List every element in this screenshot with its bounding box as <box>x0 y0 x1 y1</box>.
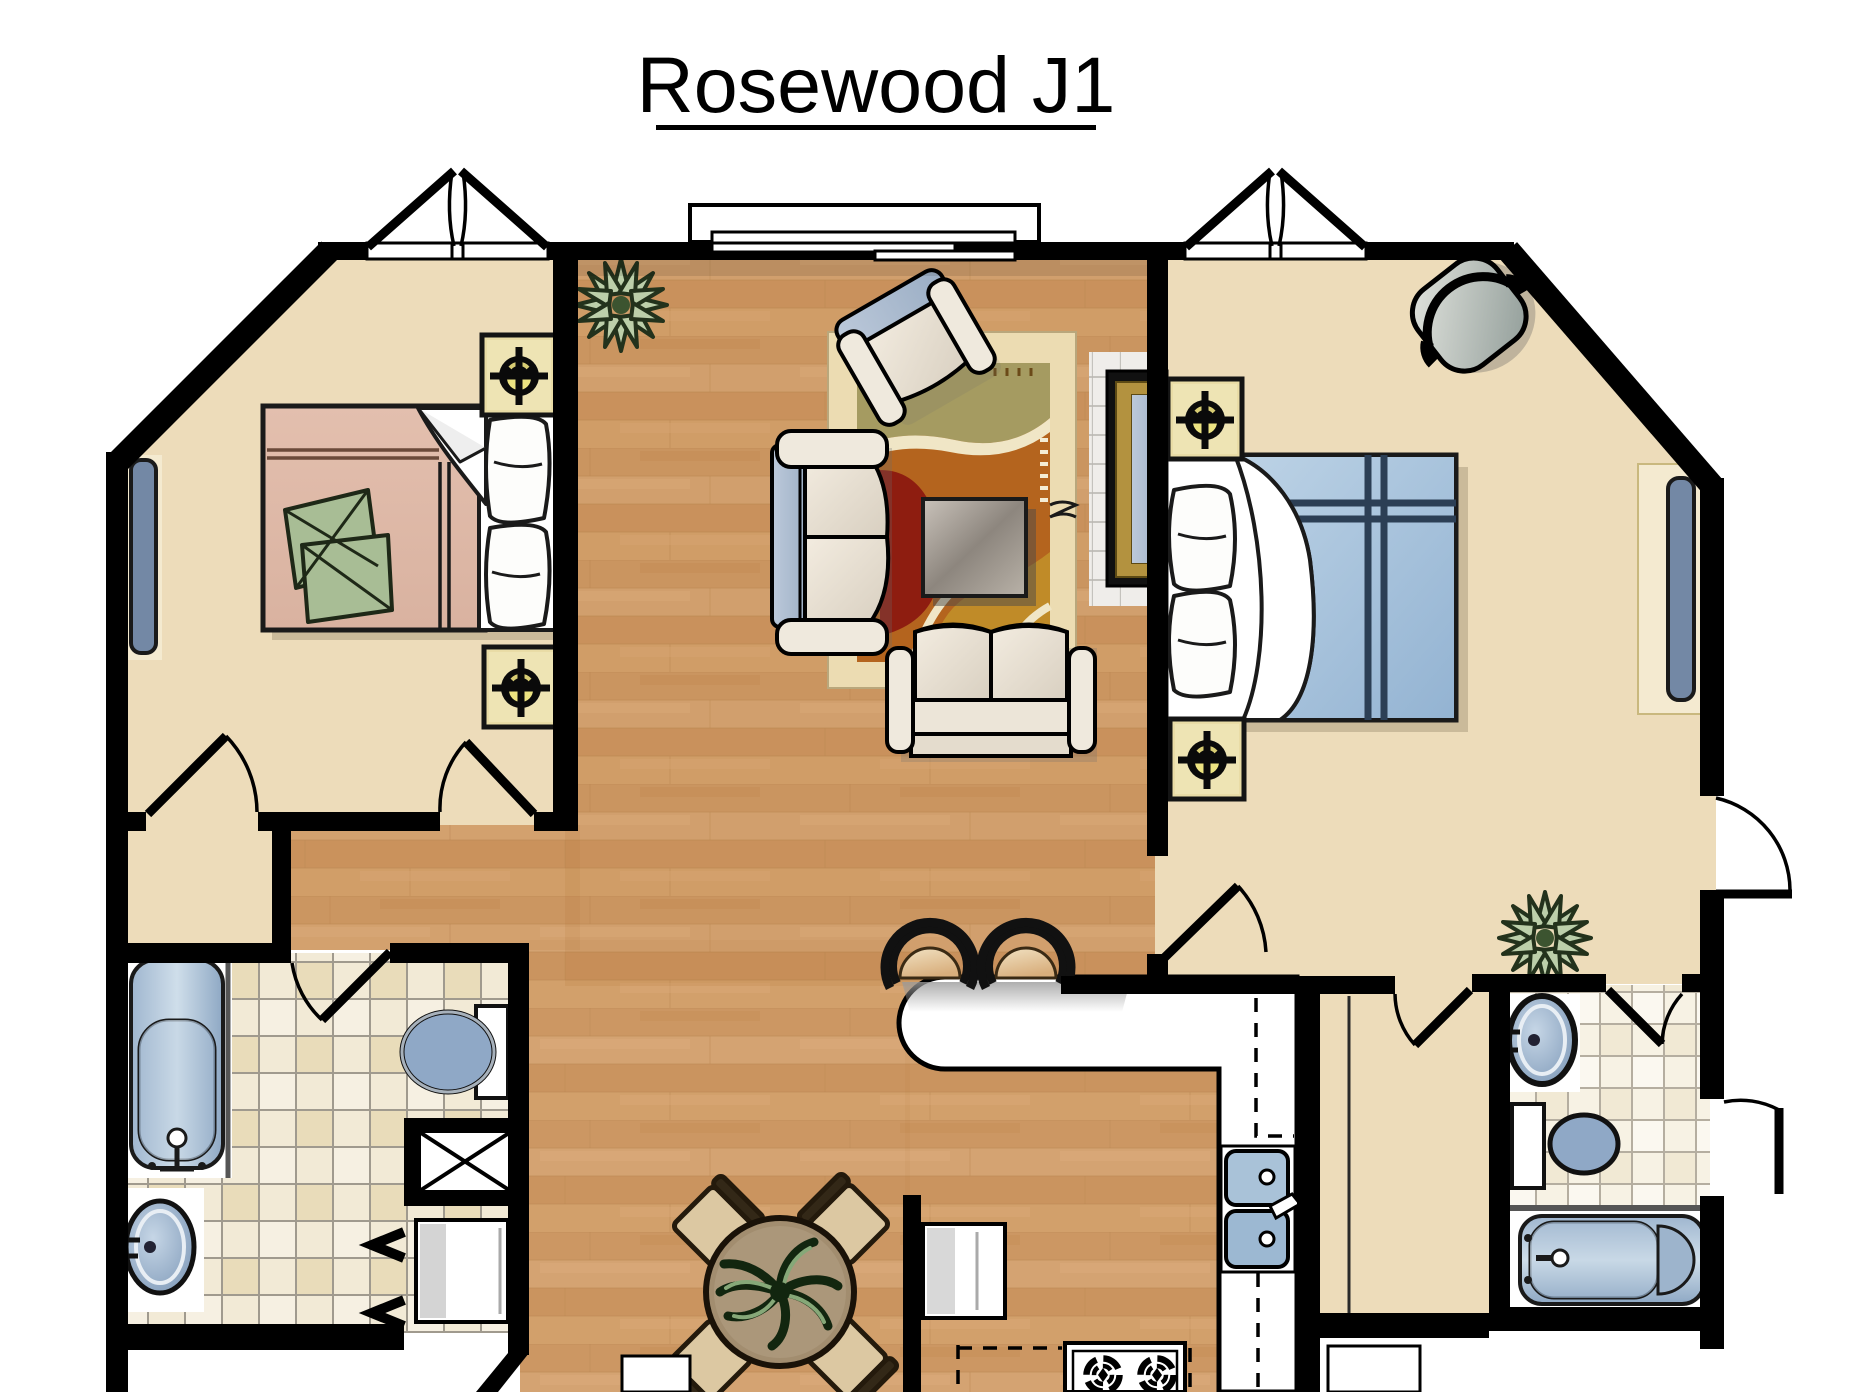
svg-text:Rosewood J1: Rosewood J1 <box>637 40 1116 129</box>
